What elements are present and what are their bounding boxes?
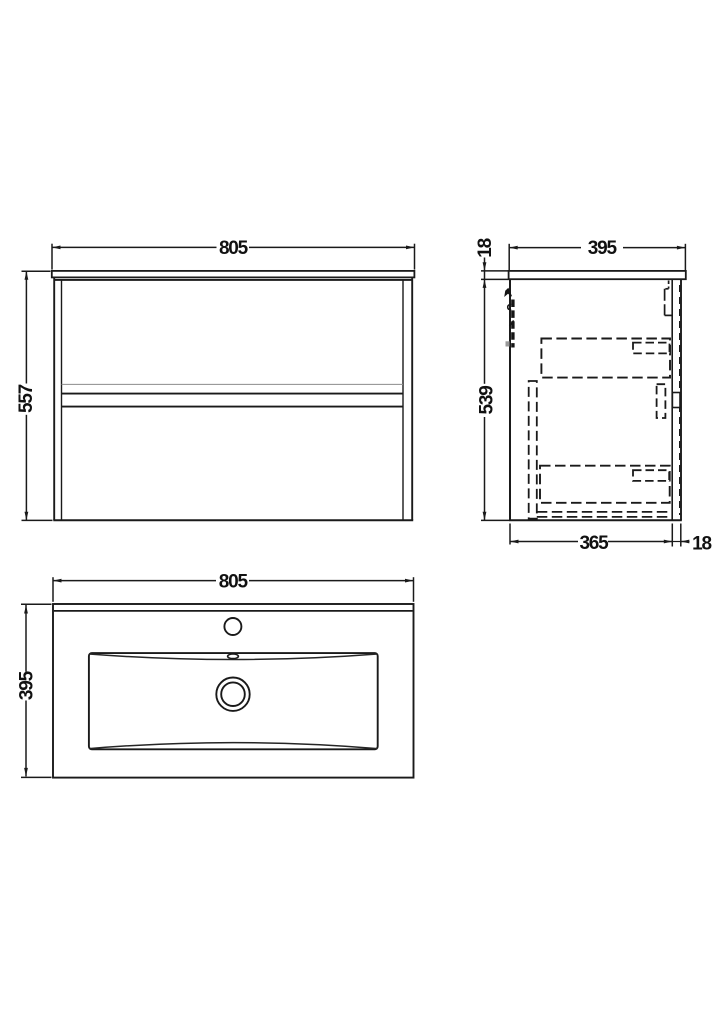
svg-text:557: 557 <box>16 384 37 413</box>
svg-text:805: 805 <box>219 238 249 259</box>
svg-text:18: 18 <box>475 238 496 257</box>
svg-text:539: 539 <box>477 386 498 415</box>
svg-text:395: 395 <box>588 238 618 259</box>
svg-text:365: 365 <box>579 533 609 554</box>
svg-text:18: 18 <box>692 533 711 554</box>
svg-text:395: 395 <box>17 670 38 700</box>
svg-text:805: 805 <box>219 571 249 592</box>
